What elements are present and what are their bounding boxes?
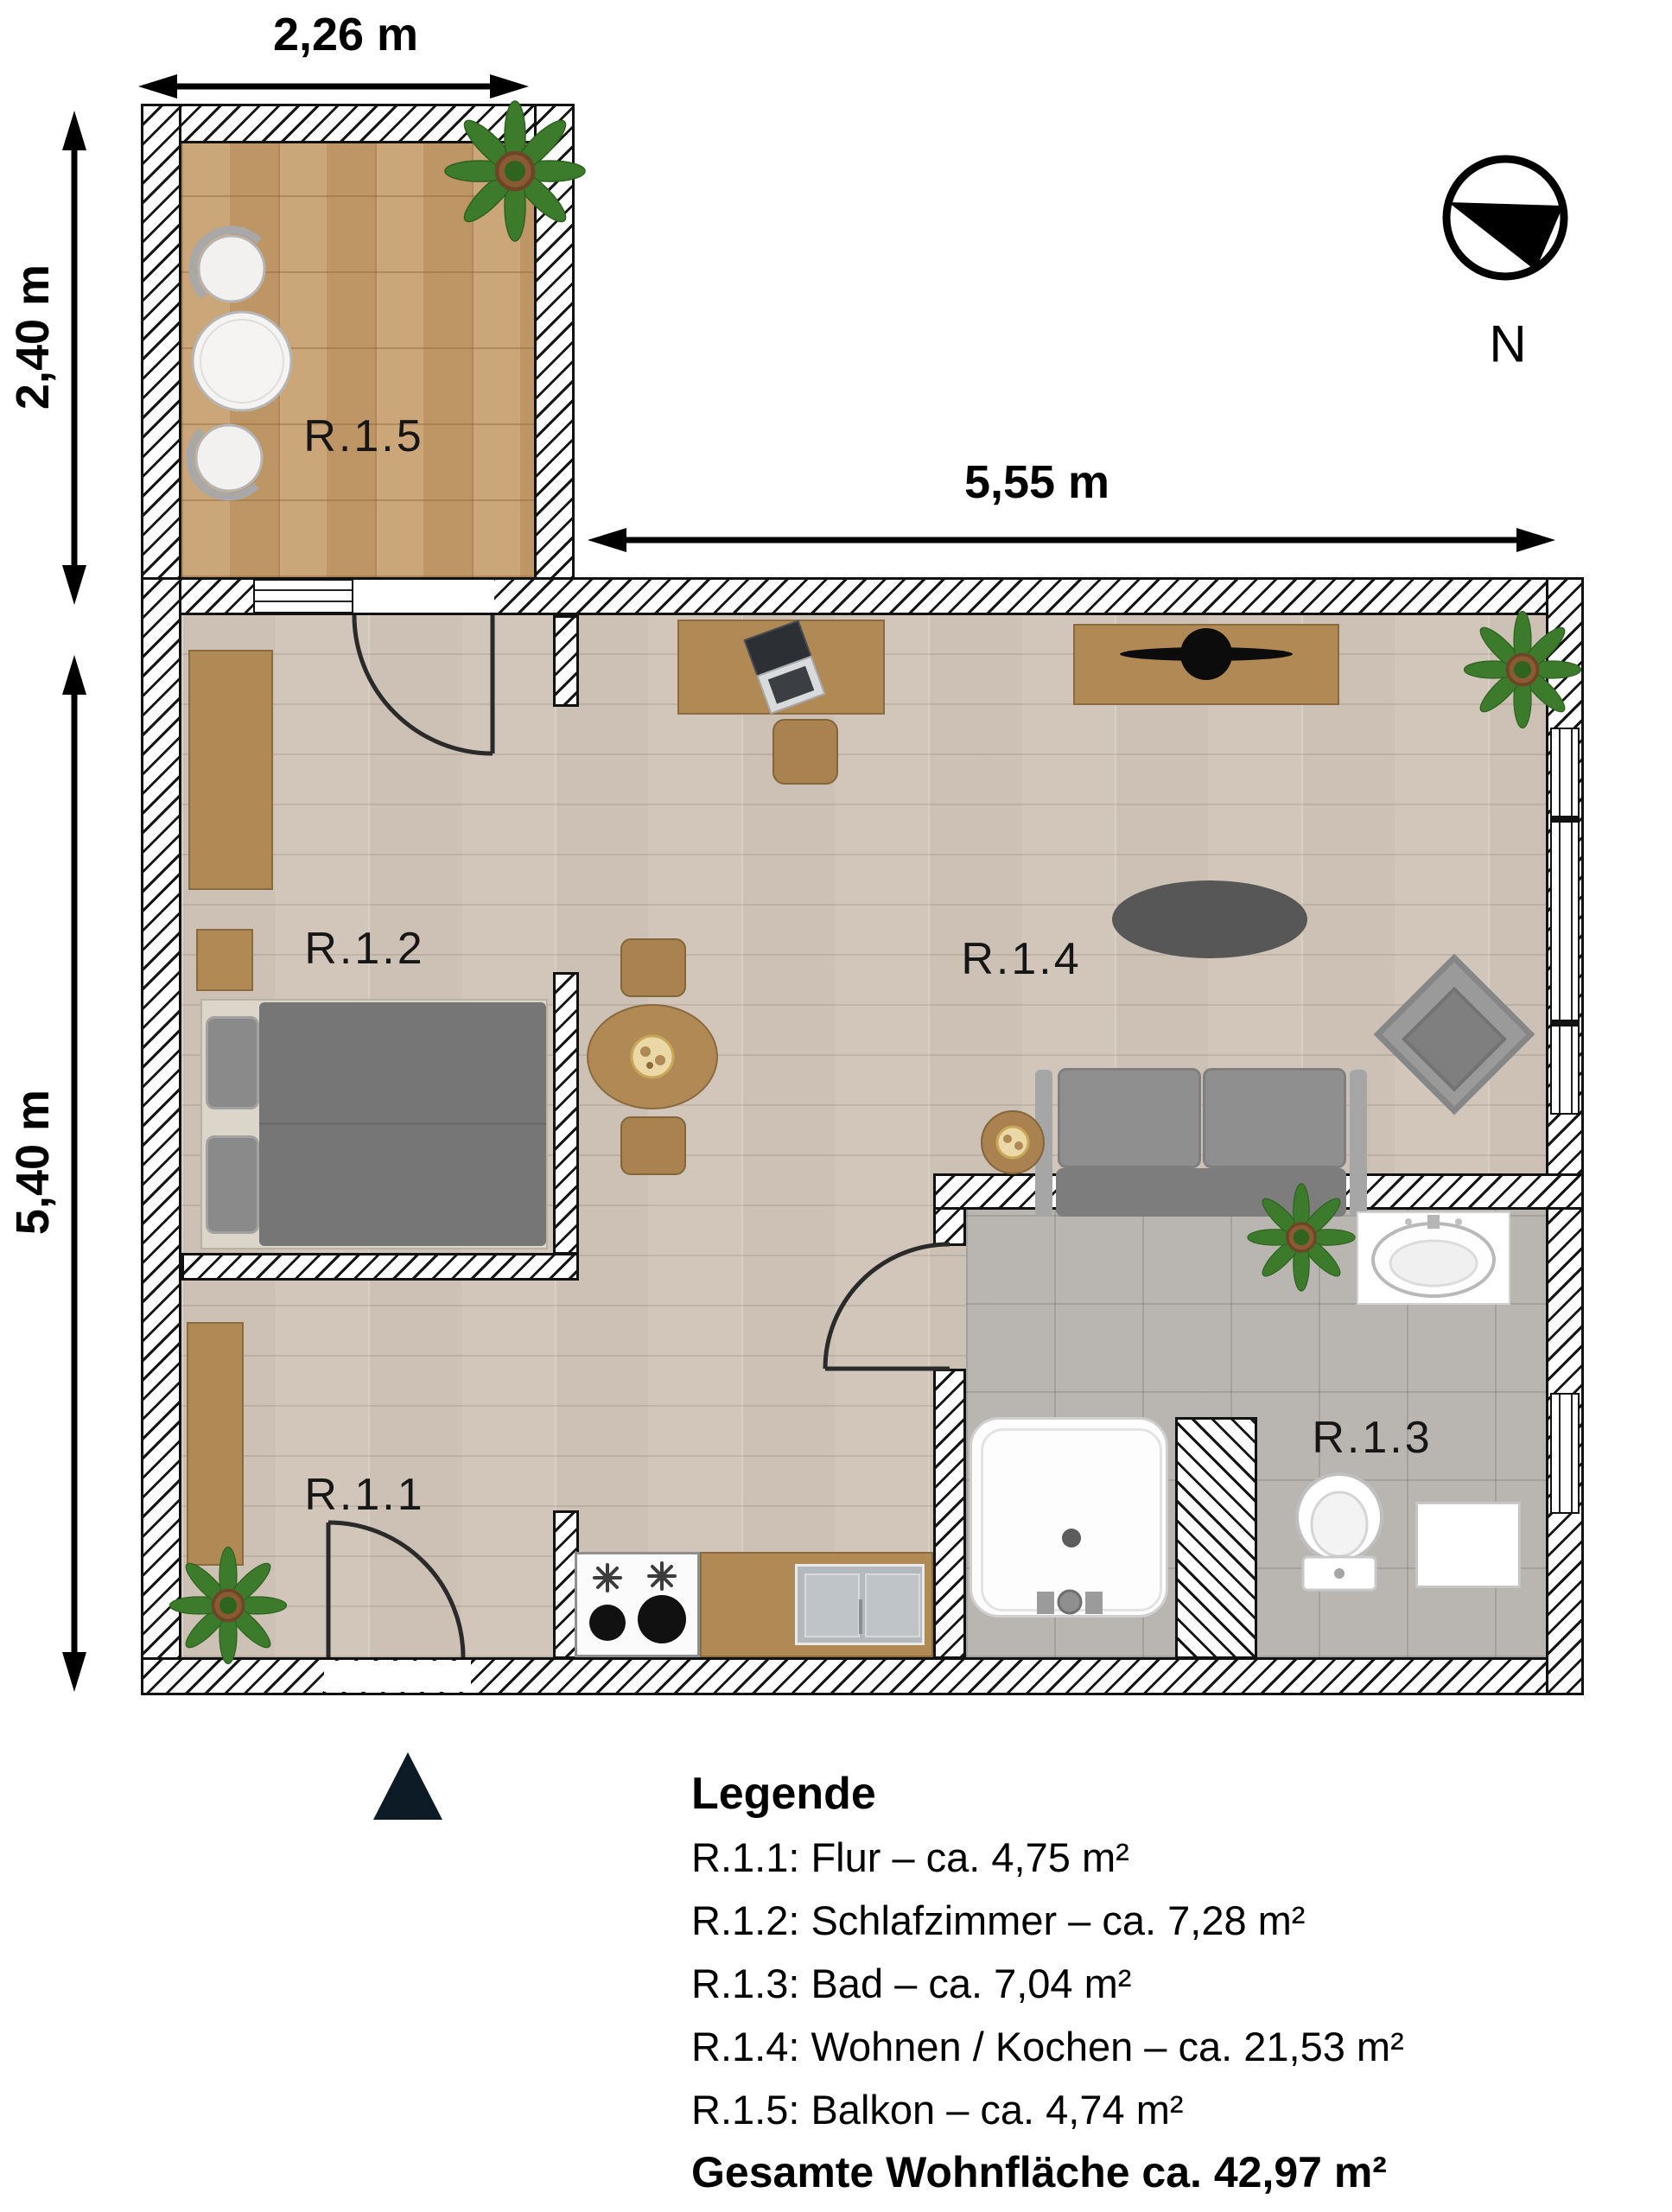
legend-item: R.1.5: Balkon – ca. 4,74 m² [691, 2078, 1404, 2141]
legend-item: R.1.4: Wohnen / Kochen – ca. 21,53 m² [691, 2015, 1404, 2078]
room-label-r13: R.1.3 [1312, 1412, 1432, 1464]
washbasin-icon [1373, 1215, 1494, 1296]
dimension-label-balcony-height: 2,40 m [6, 264, 60, 410]
dimension-arrow-balcony-width [138, 74, 529, 99]
plant-icon [1465, 612, 1581, 728]
shower-fittings-icon [1037, 1529, 1103, 1614]
floor-plan: R.1.5 R.1.2 R.1.4 R.1.1 R.1.3 2,26 m 2,4… [0, 0, 1672, 2212]
dimension-arrow-main-height [62, 655, 86, 1692]
legend: Legende R.1.1: Flur – ca. 4,75 m² R.1.2:… [691, 1763, 1404, 2204]
room-label-r14: R.1.4 [961, 933, 1081, 985]
tv-icon [1120, 628, 1293, 680]
door-entrance [328, 1522, 463, 1657]
dimension-label-balcony-width: 2,26 m [273, 8, 418, 61]
room-label-r15: R.1.5 [303, 410, 423, 462]
entrance-marker-icon [373, 1752, 442, 1820]
door-bathroom [825, 1244, 950, 1369]
legend-total: Gesamte Wohnfläche ca. 42,97 m² [691, 2141, 1404, 2204]
dimension-label-living-width: 5,55 m [964, 455, 1109, 509]
compass-north-label: N [1489, 315, 1526, 374]
legend-item: R.1.2: Schlafzimmer – ca. 7,28 m² [691, 1889, 1404, 1952]
room-label-r12: R.1.2 [304, 923, 424, 975]
dimension-label-main-height: 5,40 m [6, 1090, 60, 1235]
legend-title: Legende [691, 1763, 1404, 1826]
stove-burners-icon [589, 1563, 686, 1643]
laptop-icon [745, 620, 825, 713]
compass-north-icon [1446, 159, 1564, 276]
plant-icon [445, 101, 585, 241]
plant-icon [170, 1548, 287, 1664]
legend-item: R.1.3: Bad – ca. 7,04 m² [691, 1952, 1404, 2015]
door-balcony [354, 615, 493, 753]
room-label-r11: R.1.1 [304, 1469, 424, 1521]
balcony-seating [174, 213, 291, 512]
plant-icon [1248, 1184, 1355, 1291]
table-decor-icon [632, 1036, 1028, 1158]
toilet-icon [1297, 1474, 1382, 1590]
dimension-arrow-living-width [588, 528, 1555, 552]
legend-item: R.1.1: Flur – ca. 4,75 m² [691, 1826, 1404, 1889]
dimension-arrow-balcony-height [62, 111, 86, 605]
